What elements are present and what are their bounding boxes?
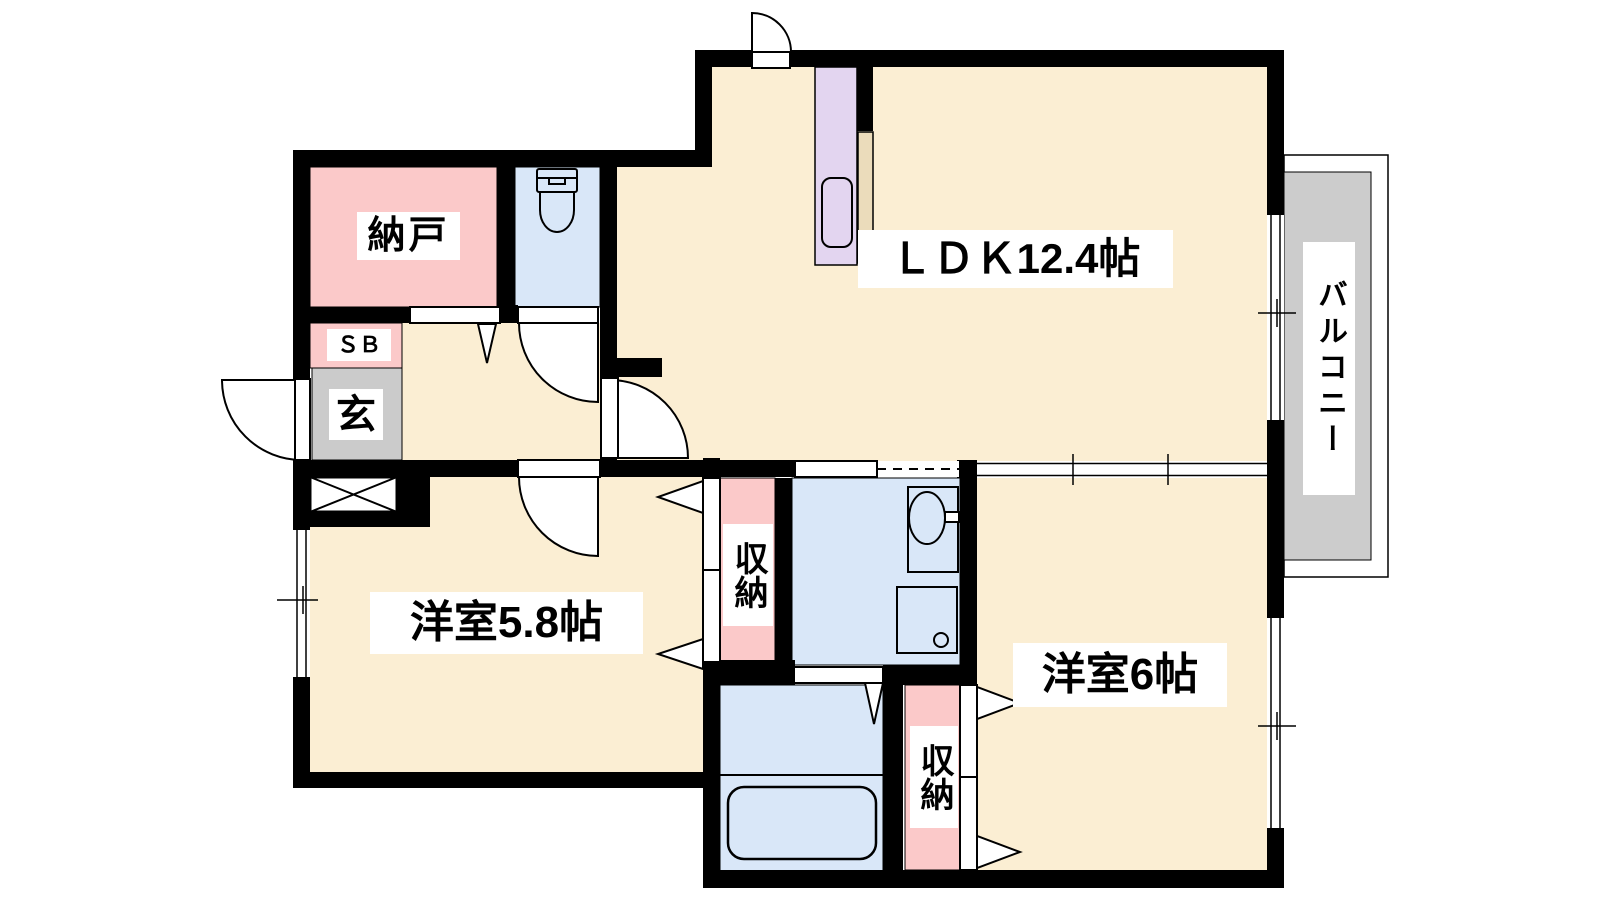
entrance-door-leaf <box>295 379 310 460</box>
western-room-6-label: 洋室6帖 <box>1013 643 1227 707</box>
entrance-label: 玄 <box>329 389 383 440</box>
bathroom-door-opening <box>794 667 883 683</box>
ldk-door-leaf <box>601 378 618 458</box>
closet-left-label: 収納 <box>723 524 773 626</box>
ldk-floor <box>617 167 1267 463</box>
western-room-58-door-leaf <box>518 460 600 477</box>
washroom-slider-panel <box>795 461 877 477</box>
entrance-door-swing <box>222 380 302 460</box>
ldk-floor-upper <box>712 67 1267 167</box>
toilet-door-leaf <box>518 307 598 323</box>
meter-box <box>310 477 397 512</box>
shoe-box-label: ＳＢ <box>327 329 391 361</box>
floorplan-drawing <box>0 0 1600 900</box>
floorplan-canvas: 納戸 ＳＢ 玄 ＬＤＫ12.4帖 洋室5.8帖 洋室6帖 収納 収納 バルコニー <box>0 0 1600 900</box>
western-room-58-label: 洋室5.8帖 <box>370 592 643 654</box>
ldk-label: ＬＤＫ12.4帖 <box>858 230 1173 288</box>
service-door-swing <box>752 13 791 52</box>
storage-room-label: 納戸 <box>357 212 460 260</box>
service-door-leaf <box>752 52 790 68</box>
storage-room-door-opening <box>410 307 500 323</box>
balcony-label: バルコニー <box>1303 242 1355 495</box>
closet-right-label: 収納 <box>910 726 958 828</box>
toilet-floor <box>515 167 600 307</box>
bathroom-floor <box>720 685 883 872</box>
